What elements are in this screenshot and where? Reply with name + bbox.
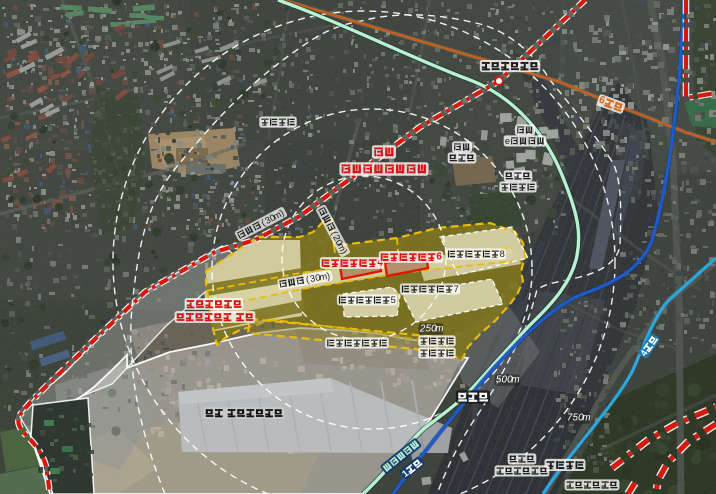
svg-text:7: 7 (454, 284, 459, 294)
svg-text:m: m (511, 375, 519, 386)
svg-text:5: 5 (391, 295, 396, 305)
svg-text:6: 6 (436, 252, 442, 263)
svg-text:e: e (505, 136, 510, 146)
svg-text:8: 8 (500, 249, 505, 259)
svg-text:m: m (582, 413, 590, 424)
svg-text:m: m (435, 324, 443, 335)
